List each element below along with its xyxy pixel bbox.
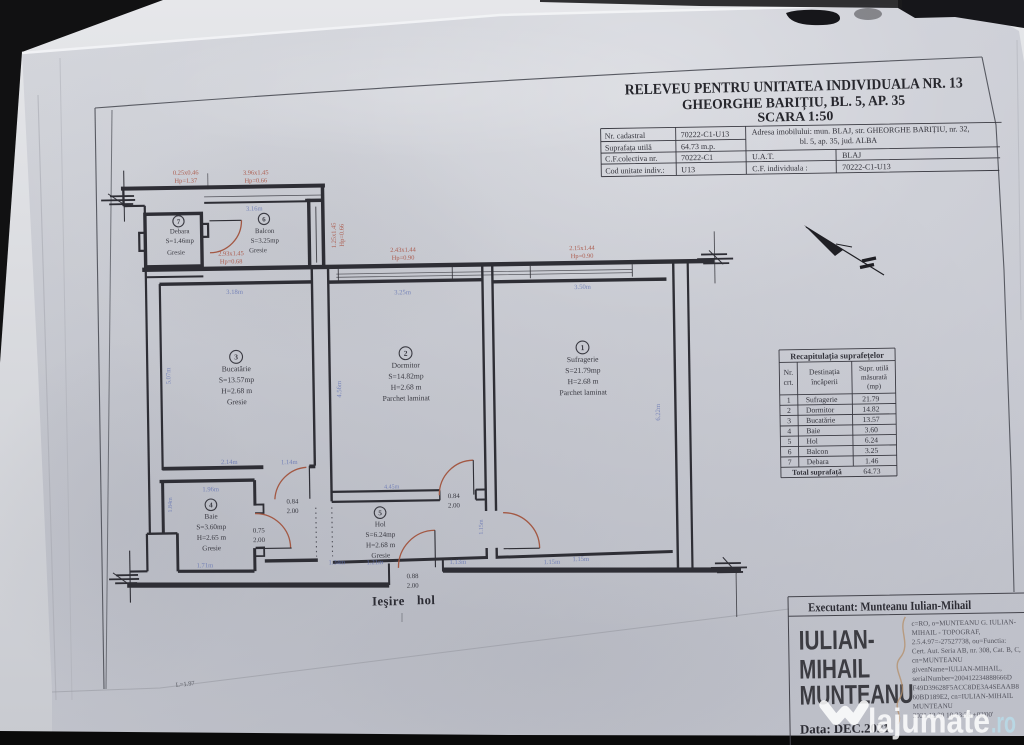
svg-text:1.71m: 1.71m xyxy=(197,562,215,569)
svg-text:Dormitor: Dormitor xyxy=(392,360,421,369)
svg-text:H=2.68 m: H=2.68 m xyxy=(568,377,599,386)
svg-text:3.25m: 3.25m xyxy=(394,289,412,296)
svg-text:Balcon: Balcon xyxy=(255,228,275,235)
svg-text:1.21m: 1.21m xyxy=(366,559,384,566)
svg-text:Baie: Baie xyxy=(204,512,217,520)
svg-text:Hol: Hol xyxy=(375,520,386,528)
svg-text:Hp=0.68: Hp=0.68 xyxy=(220,258,243,265)
svg-text:H=2.68 m: H=2.68 m xyxy=(221,386,252,395)
svg-text:cn=MUNTEANU: cn=MUNTEANU xyxy=(912,656,963,665)
svg-text:H=2.68 m: H=2.68 m xyxy=(366,541,396,549)
svg-text:Cert. Aut. Seria AB, nr. 308,: Cert. Aut. Seria AB, nr. 308, Cat. B, C, xyxy=(912,646,1021,656)
svg-text:SCARA 1:50: SCARA 1:50 xyxy=(757,108,834,125)
svg-text:70222-C1: 70222-C1 xyxy=(681,153,713,163)
svg-text:S=3.25mp: S=3.25mp xyxy=(251,237,280,244)
svg-text:Hp=0.66: Hp=0.66 xyxy=(339,224,346,247)
svg-text:S=21.79mp: S=21.79mp xyxy=(565,366,601,376)
svg-text:Hp=1.37: Hp=1.37 xyxy=(174,177,198,184)
svg-text:5.07m: 5.07m xyxy=(165,367,172,385)
svg-text:Hp=0.90: Hp=0.90 xyxy=(571,253,594,260)
svg-text:6.24: 6.24 xyxy=(865,435,879,444)
svg-text:1.15m: 1.15m xyxy=(572,556,590,563)
svg-text:3.96x1.45: 3.96x1.45 xyxy=(243,169,269,176)
svg-text:S=1.46mp: S=1.46mp xyxy=(166,238,195,245)
svg-text:2.00: 2.00 xyxy=(407,583,420,590)
svg-text:Gresie: Gresie xyxy=(167,249,185,256)
svg-text:1.14m: 1.14m xyxy=(281,459,299,466)
svg-text:1.84m: 1.84m xyxy=(168,497,174,513)
svg-text:3.50m: 3.50m xyxy=(574,284,592,291)
svg-text:Gresie: Gresie xyxy=(202,544,221,552)
svg-text:Parchet laminat: Parchet laminat xyxy=(559,387,607,397)
svg-text:0.88: 0.88 xyxy=(407,573,420,580)
svg-text:Cod unitate indiv.:: Cod unitate indiv.: xyxy=(605,166,664,176)
svg-text:6: 6 xyxy=(788,447,792,456)
svg-text:U13: U13 xyxy=(681,165,695,174)
svg-text:2.00: 2.00 xyxy=(448,502,461,509)
svg-text:60BD189E2, cn=IULIAN-MIHAIL: 60BD189E2, cn=IULIAN-MIHAIL xyxy=(913,692,1014,702)
svg-text:IULIAN-: IULIAN- xyxy=(798,624,874,655)
svg-text:Gresie: Gresie xyxy=(249,247,267,254)
svg-text:Recapitulația suprafețelor: Recapitulația suprafețelor xyxy=(790,351,884,361)
svg-text:lajumate: lajumate xyxy=(868,703,990,741)
svg-text:Destinația: Destinația xyxy=(809,367,841,376)
svg-text:.ro: .ro xyxy=(991,707,1016,740)
svg-text:c=RO, o=MUNTEANU G. IULIAN-: c=RO, o=MUNTEANU G. IULIAN- xyxy=(911,618,1016,628)
svg-text:givenName=IULIAN-MIHAIL,: givenName=IULIAN-MIHAIL, xyxy=(912,664,1002,673)
svg-text:70222-C1-U13: 70222-C1-U13 xyxy=(681,130,730,140)
svg-text:hol: hol xyxy=(417,593,436,607)
svg-text:1: 1 xyxy=(787,396,791,405)
svg-text:3.60: 3.60 xyxy=(865,425,879,434)
svg-text:Executant: Munteanu Iulian-Mih: Executant: Munteanu Iulian-Mihail xyxy=(808,598,972,615)
svg-text:H=2.65 m: H=2.65 m xyxy=(197,534,227,542)
svg-text:3.18m: 3.18m xyxy=(226,289,244,296)
svg-text:S=6.24mp: S=6.24mp xyxy=(365,531,395,539)
svg-text:C.F. individuala :: C.F. individuala : xyxy=(752,163,807,173)
svg-text:Debara: Debara xyxy=(170,228,190,235)
svg-text:3.25: 3.25 xyxy=(865,446,879,455)
svg-text:1.96m: 1.96m xyxy=(202,486,220,493)
svg-text:3: 3 xyxy=(234,352,238,361)
svg-text:2: 2 xyxy=(404,349,408,358)
svg-text:1.25x1.45: 1.25x1.45 xyxy=(331,222,338,248)
svg-text:Sufragerie: Sufragerie xyxy=(806,395,838,405)
svg-text:21.79: 21.79 xyxy=(862,394,879,403)
svg-text:0.75: 0.75 xyxy=(253,527,266,534)
svg-text:Baie: Baie xyxy=(806,426,821,435)
svg-text:1.46: 1.46 xyxy=(865,456,879,465)
svg-text:(mp): (mp) xyxy=(867,382,882,390)
svg-text:încăperii: încăperii xyxy=(810,377,838,386)
svg-text:Hp=0.90: Hp=0.90 xyxy=(392,255,415,262)
svg-text:BLAJ: BLAJ xyxy=(842,151,861,160)
svg-text:C.F.colectiva nr.: C.F.colectiva nr. xyxy=(605,154,657,164)
svg-text:3: 3 xyxy=(787,416,791,425)
svg-text:măsurată: măsurată xyxy=(861,373,888,381)
svg-text:64.73: 64.73 xyxy=(863,467,880,476)
svg-text:0.84: 0.84 xyxy=(286,498,299,505)
svg-text:0.84: 0.84 xyxy=(448,493,461,500)
svg-text:U.A.T.: U.A.T. xyxy=(752,152,774,161)
svg-text:Gresie: Gresie xyxy=(227,397,248,406)
svg-text:1.13m: 1.13m xyxy=(449,559,467,566)
svg-text:Hol: Hol xyxy=(806,436,818,445)
svg-text:Nr. cadastral: Nr. cadastral xyxy=(605,131,646,141)
svg-text:70222-C1-U13: 70222-C1-U13 xyxy=(842,162,891,172)
svg-text:2.5.4.97=-27527738, ou=Functia: 2.5.4.97=-27527738, ou=Functia: xyxy=(912,637,1007,646)
svg-text:3.16m: 3.16m xyxy=(246,205,264,212)
svg-text:S=14.82mp: S=14.82mp xyxy=(388,371,424,381)
svg-text:Sufragerie: Sufragerie xyxy=(567,355,599,365)
svg-text:4: 4 xyxy=(787,427,791,436)
svg-text:2.15x1.44: 2.15x1.44 xyxy=(569,245,595,252)
svg-text:Balcon: Balcon xyxy=(807,447,829,456)
svg-text:1.34m: 1.34m xyxy=(328,559,346,566)
svg-text:2.00: 2.00 xyxy=(253,537,266,544)
svg-text:2.00: 2.00 xyxy=(287,508,300,515)
svg-text:S=13.57mp: S=13.57mp xyxy=(219,375,255,385)
svg-text:F49D39628F5ACC8DE3A4SEAAB8: F49D39628F5ACC8DE3A4SEAAB8 xyxy=(912,683,1019,693)
svg-text:Ieşire: Ieşire xyxy=(372,594,405,609)
svg-text:5: 5 xyxy=(787,437,791,446)
svg-text:Dormitor: Dormitor xyxy=(806,405,835,414)
svg-text:Supr. utilă: Supr. utilă xyxy=(859,364,889,372)
svg-text:S=3.60mp: S=3.60mp xyxy=(196,523,226,531)
svg-text:2.14m: 2.14m xyxy=(221,459,239,466)
svg-text:Bucatărie: Bucatărie xyxy=(222,364,252,373)
svg-text:Bucatărie: Bucatărie xyxy=(806,415,836,424)
svg-text:2.43x1.44: 2.43x1.44 xyxy=(390,247,416,254)
svg-text:5: 5 xyxy=(378,509,382,517)
svg-text:13.57: 13.57 xyxy=(862,415,879,424)
svg-text:1.15m: 1.15m xyxy=(479,519,485,535)
svg-text:14.82: 14.82 xyxy=(862,404,879,413)
svg-text:Nr.: Nr. xyxy=(784,368,794,377)
svg-text:Total suprafață: Total suprafață xyxy=(792,467,842,477)
svg-text:Debara: Debara xyxy=(807,457,830,466)
svg-text:4.56m: 4.56m xyxy=(336,380,343,398)
svg-text:6.22m: 6.22m xyxy=(655,403,662,421)
svg-text:0.25x0.46: 0.25x0.46 xyxy=(173,169,199,176)
svg-text:Parchet laminat: Parchet laminat xyxy=(382,393,430,403)
svg-text:H=2.68 m: H=2.68 m xyxy=(391,382,422,391)
svg-text:Hp=0.66: Hp=0.66 xyxy=(244,177,267,184)
svg-text:4.45m: 4.45m xyxy=(384,484,400,490)
svg-text:MIHAIL - TOPOGRAF,: MIHAIL - TOPOGRAF, xyxy=(912,628,981,637)
svg-text:2.93x1.45: 2.93x1.45 xyxy=(218,250,244,257)
svg-text:64.73 m.p.: 64.73 m.p. xyxy=(681,142,715,152)
svg-text:serialNumber=200412234888666D: serialNumber=200412234888666D xyxy=(912,673,1012,683)
svg-text:crt.: crt. xyxy=(783,378,793,387)
svg-text:7: 7 xyxy=(788,458,792,467)
svg-text:4: 4 xyxy=(209,501,213,509)
svg-text:bl. 5, ap. 35, jud. ALBA: bl. 5, ap. 35, jud. ALBA xyxy=(800,136,878,146)
svg-text:1: 1 xyxy=(581,343,585,352)
svg-text:2: 2 xyxy=(787,406,791,415)
svg-text:1.15m: 1.15m xyxy=(543,559,561,566)
svg-text:Suprafața utilă: Suprafața utilă xyxy=(605,143,652,153)
